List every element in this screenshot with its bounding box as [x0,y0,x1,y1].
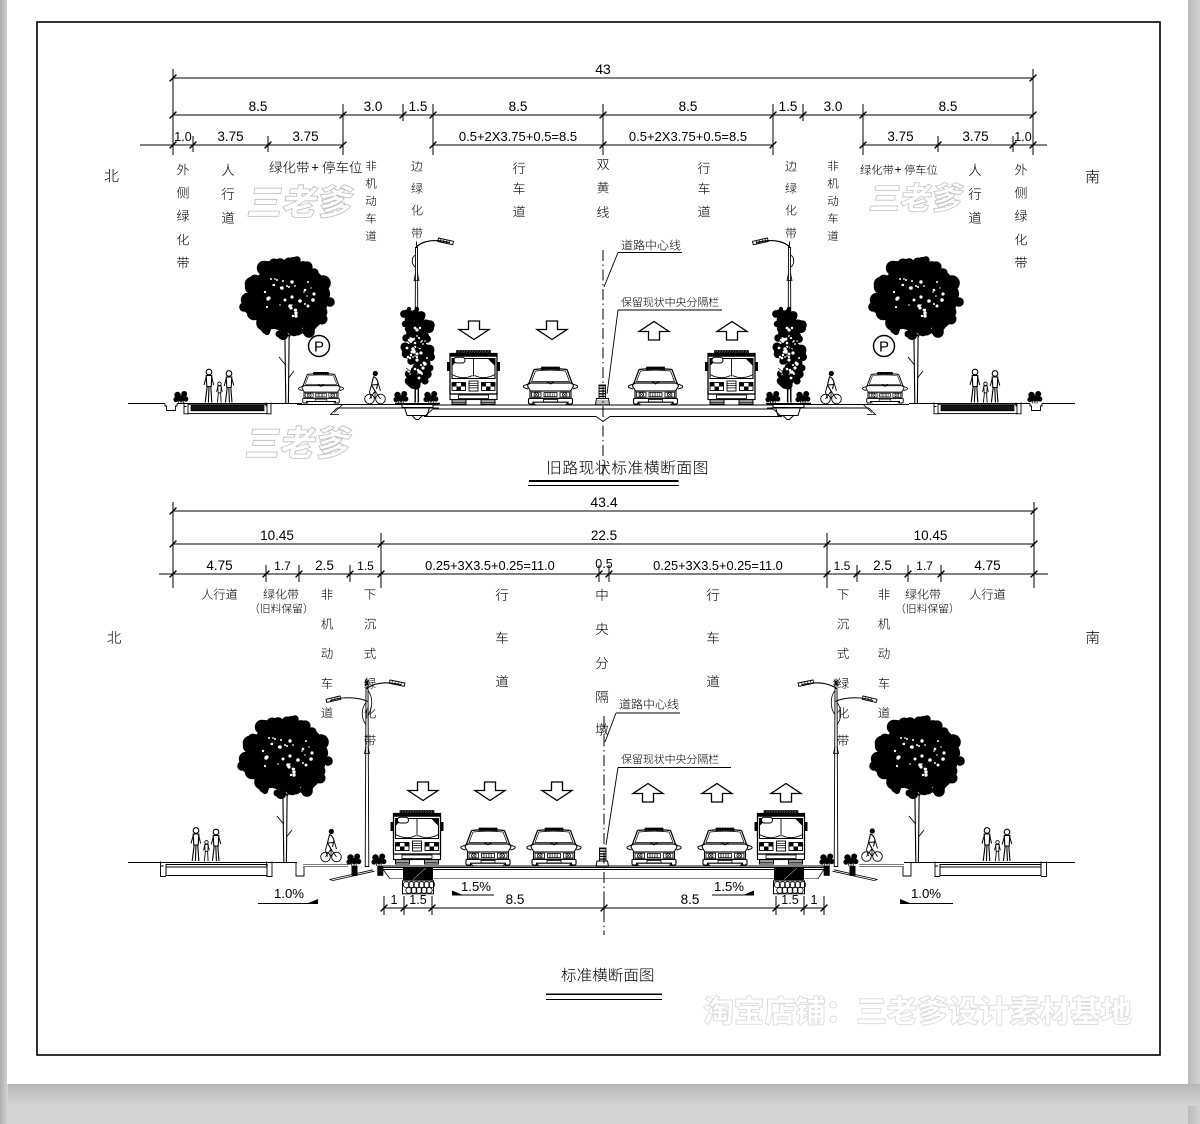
svg-text:1.0: 1.0 [1014,130,1031,144]
svg-text:8.5: 8.5 [679,99,698,114]
svg-text:4.75: 4.75 [974,558,1000,573]
svg-text:8.5: 8.5 [249,99,268,114]
svg-text:10.45: 10.45 [914,528,948,543]
svg-text:8.5: 8.5 [939,99,958,114]
svg-text:1.0%: 1.0% [274,886,304,901]
svg-text:1.5%: 1.5% [461,879,491,894]
svg-text:8.5: 8.5 [509,99,528,114]
svg-text:1: 1 [811,893,818,907]
svg-text:3.75: 3.75 [217,129,243,144]
svg-text:3.75: 3.75 [887,129,913,144]
svg-text:8.5: 8.5 [506,892,525,907]
svg-text:0.25+3X3.5+0.25=11.0: 0.25+3X3.5+0.25=11.0 [425,558,555,573]
svg-text:1.5: 1.5 [781,893,798,907]
svg-text:+: + [311,160,319,175]
svg-text:3.0: 3.0 [824,99,843,114]
svg-text:1.0: 1.0 [174,130,191,144]
svg-text:3.0: 3.0 [364,99,383,114]
svg-text:0.5: 0.5 [595,557,612,571]
svg-text:8.5: 8.5 [681,892,700,907]
svg-text:3.75: 3.75 [962,129,988,144]
svg-text:1: 1 [391,893,398,907]
svg-text:22.5: 22.5 [591,528,617,543]
svg-text:0.25+3X3.5+0.25=11.0: 0.25+3X3.5+0.25=11.0 [653,558,783,573]
svg-text:1.7: 1.7 [274,559,291,573]
svg-text:1.5: 1.5 [357,559,374,573]
svg-text:43: 43 [595,61,611,77]
svg-text:2.5: 2.5 [873,558,892,573]
svg-text:4.75: 4.75 [206,558,232,573]
svg-text:2.5: 2.5 [315,558,334,573]
svg-text:0.5+2X3.75+0.5=8.5: 0.5+2X3.75+0.5=8.5 [459,129,577,144]
svg-text:1.5: 1.5 [834,559,851,573]
svg-text:10.45: 10.45 [260,528,294,543]
svg-text:1.0%: 1.0% [911,886,941,901]
svg-text:3.75: 3.75 [292,129,318,144]
svg-text:1.5: 1.5 [779,99,798,114]
svg-text:1.5: 1.5 [409,893,426,907]
svg-text:1.5%: 1.5% [714,879,744,894]
svg-text:43.4: 43.4 [590,494,617,510]
svg-text:P: P [314,339,324,356]
svg-text:P: P [879,339,889,356]
svg-text:1.7: 1.7 [916,559,933,573]
svg-text:0.5+2X3.75+0.5=8.5: 0.5+2X3.75+0.5=8.5 [629,129,747,144]
svg-text:+: + [894,163,901,177]
svg-text:1.5: 1.5 [409,99,428,114]
